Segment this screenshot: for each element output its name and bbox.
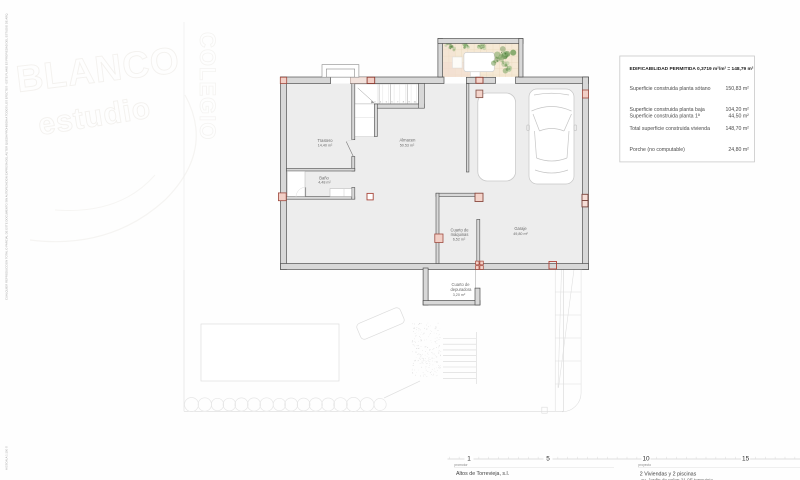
svg-text:CUALQUIER REPRODUCCION TOTAL O: CUALQUIER REPRODUCCION TOTAL O PARCIAL D… xyxy=(5,13,9,300)
svg-text:1: 1 xyxy=(467,455,471,462)
svg-text:Almacen: Almacen xyxy=(400,138,417,143)
svg-text:150,83 m²: 150,83 m² xyxy=(726,86,750,92)
svg-text:depuradora: depuradora xyxy=(451,287,473,292)
svg-text:Baño: Baño xyxy=(319,175,329,180)
svg-text:A ESCALA 1:100 S: A ESCALA 1:100 S xyxy=(5,446,9,470)
svg-text:5: 5 xyxy=(546,455,550,462)
svg-text:Garaje: Garaje xyxy=(514,226,527,231)
svg-text:10: 10 xyxy=(642,455,650,462)
svg-text:Porche (no computable): Porche (no computable) xyxy=(630,147,686,153)
svg-text:6,52 m²: 6,52 m² xyxy=(453,237,466,241)
svg-text:15: 15 xyxy=(742,455,750,462)
svg-text:Superficie construida planta b: Superficie construida planta baja xyxy=(630,107,705,113)
svg-text:Superficie construida planta 1: Superficie construida planta 1ª xyxy=(630,114,700,120)
svg-text:EDIFICABILIDAD PERMITIDA 0,371: EDIFICABILIDAD PERMITIDA 0,3719 m²/m² = … xyxy=(630,66,754,72)
svg-text:3,20 m²: 3,20 m² xyxy=(453,293,466,297)
svg-text:promotor: promotor xyxy=(454,463,468,467)
svg-text:4,48 m²: 4,48 m² xyxy=(318,181,331,185)
svg-text:máquinas: máquinas xyxy=(451,232,469,237)
svg-text:Total superficie construida vi: Total superficie construida vivienda xyxy=(630,126,711,132)
svg-text:14,40 m²: 14,40 m² xyxy=(318,144,333,148)
svg-text:44,50 m²: 44,50 m² xyxy=(728,114,749,120)
svg-text:24,80 m²: 24,80 m² xyxy=(728,147,749,153)
svg-text:148,70 m²: 148,70 m² xyxy=(726,126,750,132)
svg-text:104,20 m²: 104,20 m² xyxy=(726,107,750,113)
svg-text:Superficie construida planta s: Superficie construida planta sótano xyxy=(630,86,711,92)
svg-text:COLEGIO: COLEGIO xyxy=(195,32,220,140)
svg-text:proyecto: proyecto xyxy=(638,463,651,467)
svg-text:50.53 m²: 50.53 m² xyxy=(400,143,415,147)
svg-text:Altos de Torrevieja, s.l.: Altos de Torrevieja, s.l. xyxy=(456,471,509,477)
svg-text:49,80 m²: 49,80 m² xyxy=(513,232,528,236)
svg-text:Trastero: Trastero xyxy=(317,138,333,143)
